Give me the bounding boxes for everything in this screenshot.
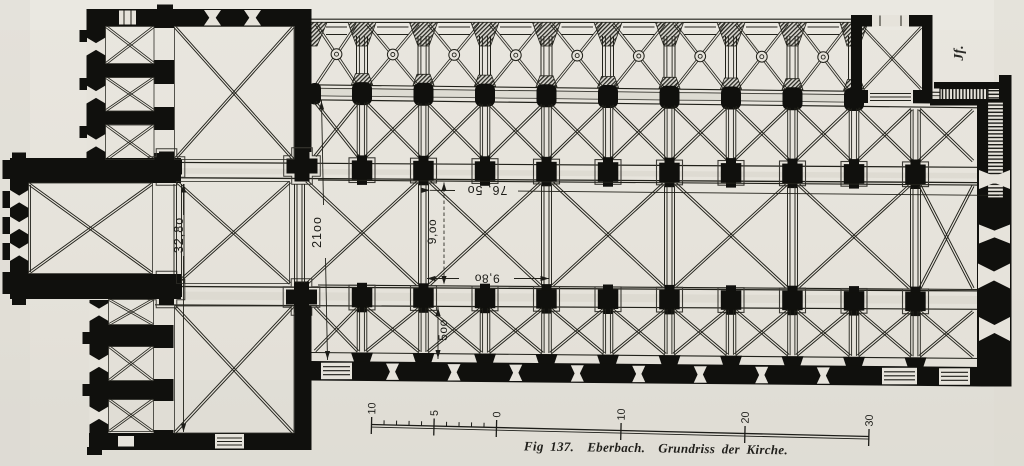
svg-text:20: 20	[740, 411, 752, 423]
svg-text:9,8o: 9,8o	[474, 272, 499, 286]
svg-text:30: 30	[864, 414, 876, 426]
svg-text:10: 10	[366, 402, 378, 414]
svg-text:21oo: 21oo	[310, 216, 324, 248]
svg-text:10: 10	[616, 408, 628, 420]
svg-text:76, 5o: 76, 5o	[467, 183, 508, 197]
svg-text:0: 0	[491, 411, 503, 417]
svg-text:Jf.: Jf.	[952, 45, 967, 61]
svg-text:5: 5	[429, 410, 441, 416]
svg-text:9,oo: 9,oo	[425, 219, 439, 244]
svg-text:32,8o: 32,8o	[172, 217, 186, 253]
svg-text:5oo: 5oo	[436, 319, 450, 341]
